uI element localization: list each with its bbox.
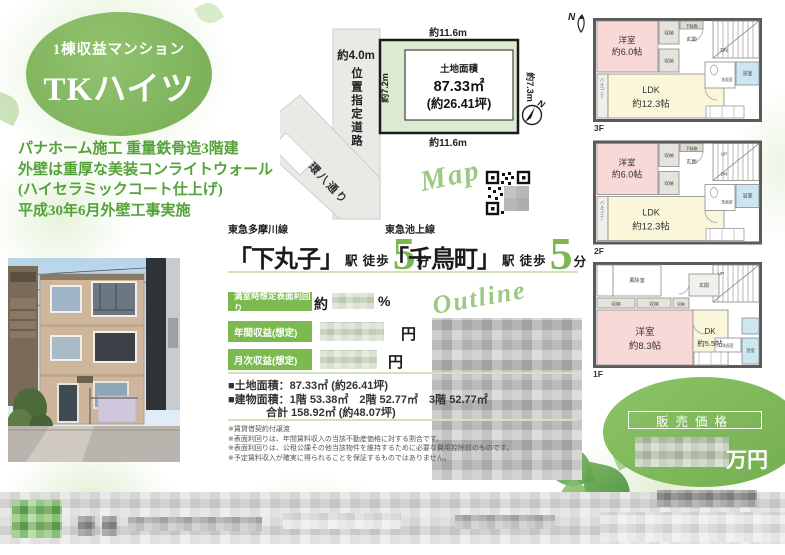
windbreak-room-label: 風除室 (629, 276, 645, 284)
room-ldk: LDK (642, 208, 660, 218)
washroom-label: 洗面室 (721, 200, 733, 205)
floor-label-2f: 2F (594, 246, 604, 256)
room-ldk-size: 約12.3帖 (632, 98, 670, 110)
leaf-decoration (0, 92, 24, 127)
footer-logo-redacted (12, 500, 62, 538)
footer-text-redacted (78, 516, 95, 536)
building-total-line: 合計 158.92㎡ (約48.07坪) (266, 404, 396, 420)
storage-label: 収納 (664, 58, 674, 65)
feature-line: 外壁は重厚な美装コンライトウォール (18, 160, 278, 181)
stairs-up-label: UP (718, 271, 724, 276)
washroom-label: 洗面室 (722, 343, 734, 348)
footer-text-redacted (102, 516, 117, 536)
footer-bottom-gap (0, 544, 785, 555)
dimension-top: 約11.6m (429, 26, 467, 39)
floorplan-2f: 洋室 約6.0帖 バルコニー LDK 約12.3帖 収納 収納 下駄箱 玄関 U… (593, 140, 762, 245)
feature-line: パナホーム施工 重量鉄骨造3階建 (18, 139, 278, 160)
yield-suffix: % (378, 293, 390, 309)
note-line: ※予定賃料収入が確実に得られることを保証するものではありません。 (228, 454, 513, 464)
balcony-label: バルコニー (600, 200, 605, 221)
walk-minutes: 5 (550, 236, 573, 272)
flyer-page: 1棟収益マンション TKハイツ パナホーム施工 重量鉄骨造3階建 外壁は重厚な美… (0, 0, 785, 555)
storage-label: 収納 (664, 152, 674, 159)
room-western: 洋室 (618, 35, 636, 45)
storage-label: 収納 (664, 180, 674, 187)
monthly-income-redacted (320, 350, 377, 369)
room-western: 洋室 (635, 326, 654, 338)
stairs-down-label: DN (720, 48, 728, 54)
footer-text-redacted (128, 517, 262, 531)
footer-text-redacted (455, 515, 555, 529)
bath-label: 浴室 (742, 193, 752, 200)
room-western-size: 約8.3帖 (629, 340, 662, 352)
feature-line: (ハイセラミックコート仕上げ) (18, 180, 278, 201)
floorplan-1f: 風除室 収納 収納 収納 洋室 約8.3帖 DK 約5.5帖 玄関 UP 洗面室… (593, 262, 762, 368)
storage-label: 収納 (677, 302, 685, 307)
dimension-bottom: 約11.6m (429, 136, 467, 149)
section-divider (228, 372, 578, 374)
washroom-label: 洗面室 (721, 77, 733, 82)
land-area-title: 土地面積 (440, 63, 479, 75)
note-line: ※表面利回りは、年間賃料収入の当該不動産価格に対する割合です。 (228, 435, 513, 445)
shoe-box-label: 下駄箱 (686, 23, 698, 29)
property-type-label: 1棟収益マンション (53, 38, 185, 59)
monthly-income-label: 月次収益(想定) (228, 349, 312, 370)
yield-label: 満室時想定表面利回り (228, 292, 312, 311)
yield-prefix: 約 (314, 294, 328, 314)
dimension-right: 約7.3m (525, 72, 536, 102)
section-divider (228, 419, 578, 421)
storage-label: 収納 (611, 301, 621, 308)
designated-road-label: 位置指定道路 (350, 66, 363, 148)
floor-label-1f: 1F (593, 369, 603, 379)
room-dk: DK (704, 327, 716, 336)
entrance-label: 玄関 (699, 282, 709, 289)
entrance-label: 玄関 (686, 35, 696, 43)
annual-income-label: 年間収益(想定) (228, 321, 312, 342)
station-info-chidoricho: 東急池上線 「千鳥町」 駅 徒歩 5 分 (385, 221, 586, 272)
station-name: 「千鳥町」 (385, 248, 500, 272)
room-western-size: 約6.0帖 (612, 169, 643, 180)
qr-code (483, 168, 533, 218)
floorplan-compass-icon: N (568, 10, 590, 34)
price-value-redacted (635, 437, 729, 467)
walk-label: 駅 徒歩 (502, 250, 547, 269)
stairs-down-label: DN (721, 172, 728, 177)
shoe-box-label: 下駄箱 (686, 145, 698, 151)
title-badge: 1棟収益マンション TKハイツ (26, 12, 212, 136)
bath-label: 浴室 (742, 70, 752, 77)
disclaimer-notes: ※賃貸借契約付譲渡 ※表面利回りは、年間賃料収入の当該不動産価格に対する割合です… (228, 425, 513, 463)
storage-label: 収納 (664, 30, 674, 37)
walk-label: 駅 徒歩 (345, 250, 390, 269)
footer-text-redacted (657, 490, 757, 507)
footer-text-redacted (600, 512, 785, 542)
leaf-decoration (194, 0, 224, 28)
monthly-income-suffix: 円 (388, 351, 403, 372)
price-label: 販売価格 (628, 411, 762, 429)
floorplan-3f: 洋室 約6.0帖 バルコニー LDK 約12.3帖 収納 収納 下駄箱 玄関 D… (593, 18, 762, 122)
room-western-size: 約6.0帖 (612, 46, 643, 57)
property-name: TKハイツ (43, 62, 194, 110)
footer-text-redacted (283, 513, 401, 529)
room-ldk-size: 約12.3帖 (632, 221, 670, 233)
section-divider (228, 271, 578, 273)
note-line: ※賃貸借契約付譲渡 (228, 425, 513, 435)
bath-label: 浴室 (746, 347, 755, 354)
annual-income-suffix: 円 (401, 323, 416, 344)
price-unit: 万円 (726, 444, 768, 474)
land-area-tsubo: (約26.41坪) (427, 96, 492, 111)
note-line: ※表面利回りは、公租公課その他当該物件を維持するために必要な費用控除前のものです… (228, 444, 513, 454)
room-dk-size: 約5.5帖 (697, 338, 723, 348)
room-ldk: LDK (642, 85, 660, 95)
annual-income-redacted (320, 322, 384, 341)
svg-text:N: N (568, 12, 576, 23)
road-width-label: 約4.0m (337, 48, 375, 62)
balcony-label: バルコニー (600, 78, 605, 99)
station-name: 「下丸子」 (228, 248, 343, 272)
floor-label-3f: 3F (594, 123, 604, 133)
room-western: 洋室 (618, 158, 636, 168)
storage-label: 収納 (649, 301, 659, 308)
yield-value-redacted (332, 293, 374, 309)
land-area-sqm: 87.33㎡ (434, 77, 485, 95)
dimension-left: 約7.2m (379, 73, 390, 103)
entrance-label: 玄関 (686, 158, 696, 166)
outline-script-label: Outline (430, 275, 529, 321)
feature-list: パナホーム施工 重量鉄骨造3階建 外壁は重厚な美装コンライトウォール (ハイセラ… (18, 139, 278, 221)
feature-line: 平成30年6月外壁工事実施 (18, 201, 278, 222)
minutes-unit: 分 (574, 251, 587, 270)
compass-icon: N (523, 98, 547, 125)
stairs-up-label: UP (721, 152, 727, 157)
building-photo (8, 258, 180, 462)
